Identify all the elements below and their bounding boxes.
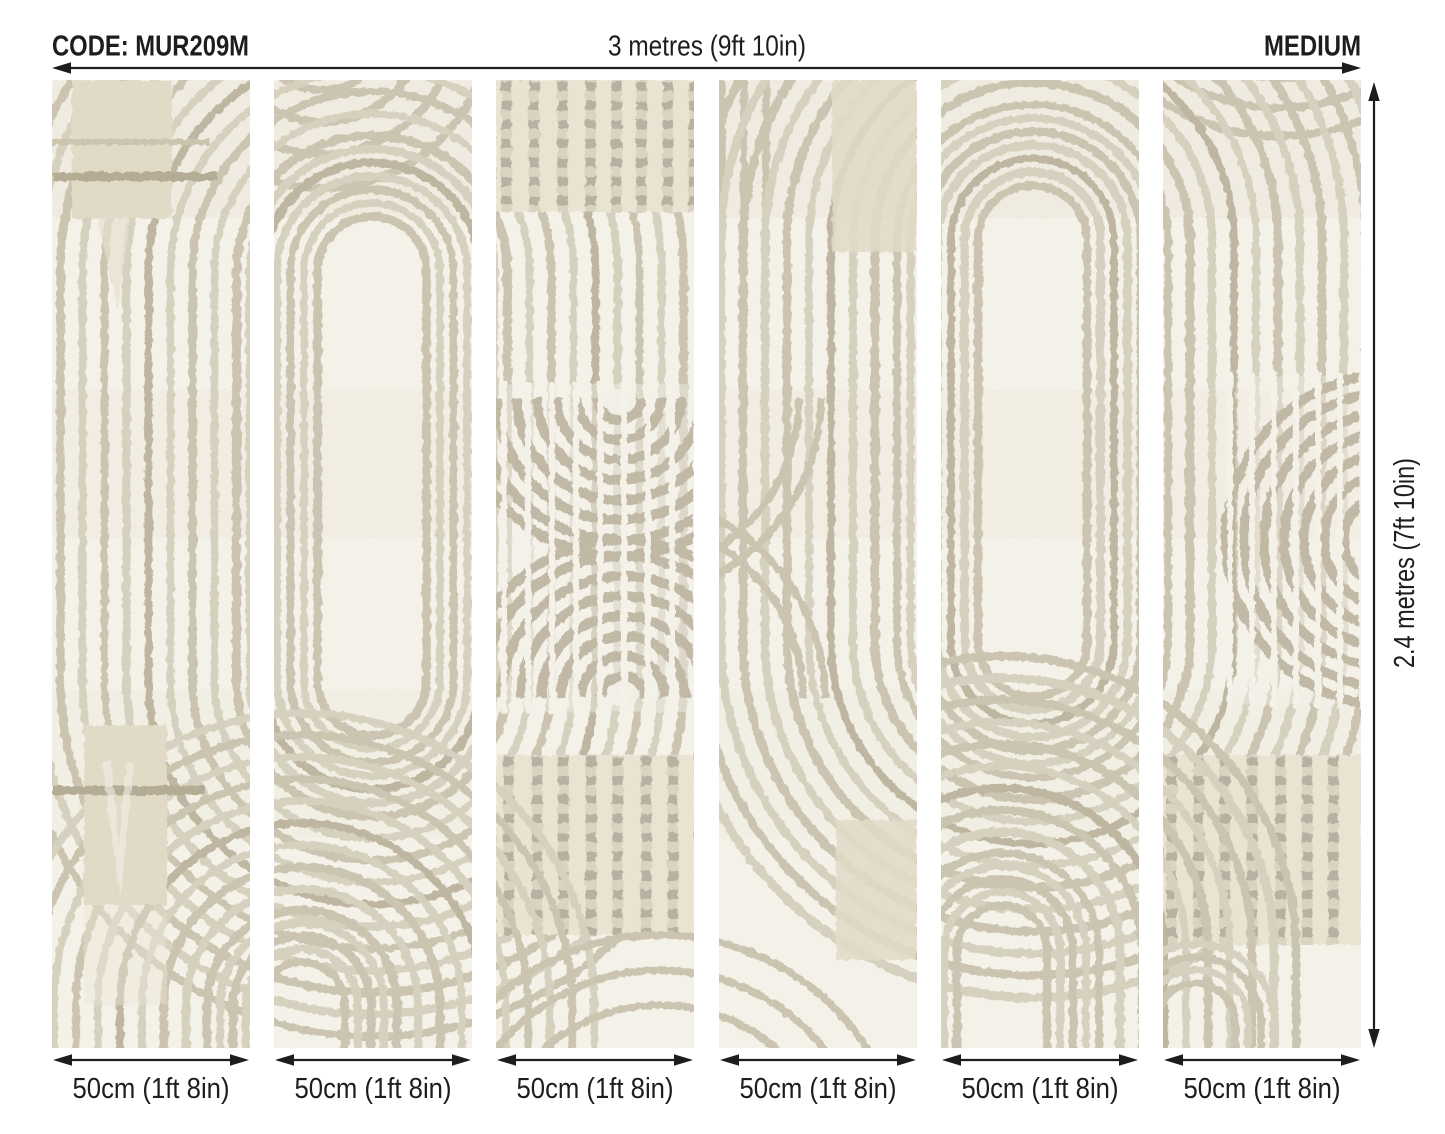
svg-text:50cm (1ft 8in): 50cm (1ft 8in) [1184, 1073, 1341, 1105]
svg-text:50cm (1ft 8in): 50cm (1ft 8in) [295, 1073, 452, 1105]
svg-text:50cm (1ft 8in): 50cm (1ft 8in) [73, 1073, 230, 1105]
svg-text:2.4 metres (7ft 10in): 2.4 metres (7ft 10in) [1389, 458, 1421, 668]
svg-text:50cm (1ft 8in): 50cm (1ft 8in) [517, 1073, 674, 1105]
svg-text:3 metres (9ft 10in): 3 metres (9ft 10in) [608, 31, 806, 63]
svg-text:CODE: MUR209M: CODE: MUR209M [52, 31, 249, 63]
svg-text:MEDIUM: MEDIUM [1264, 31, 1361, 63]
svg-text:50cm (1ft 8in): 50cm (1ft 8in) [740, 1073, 897, 1105]
svg-text:50cm (1ft 8in): 50cm (1ft 8in) [962, 1073, 1119, 1105]
